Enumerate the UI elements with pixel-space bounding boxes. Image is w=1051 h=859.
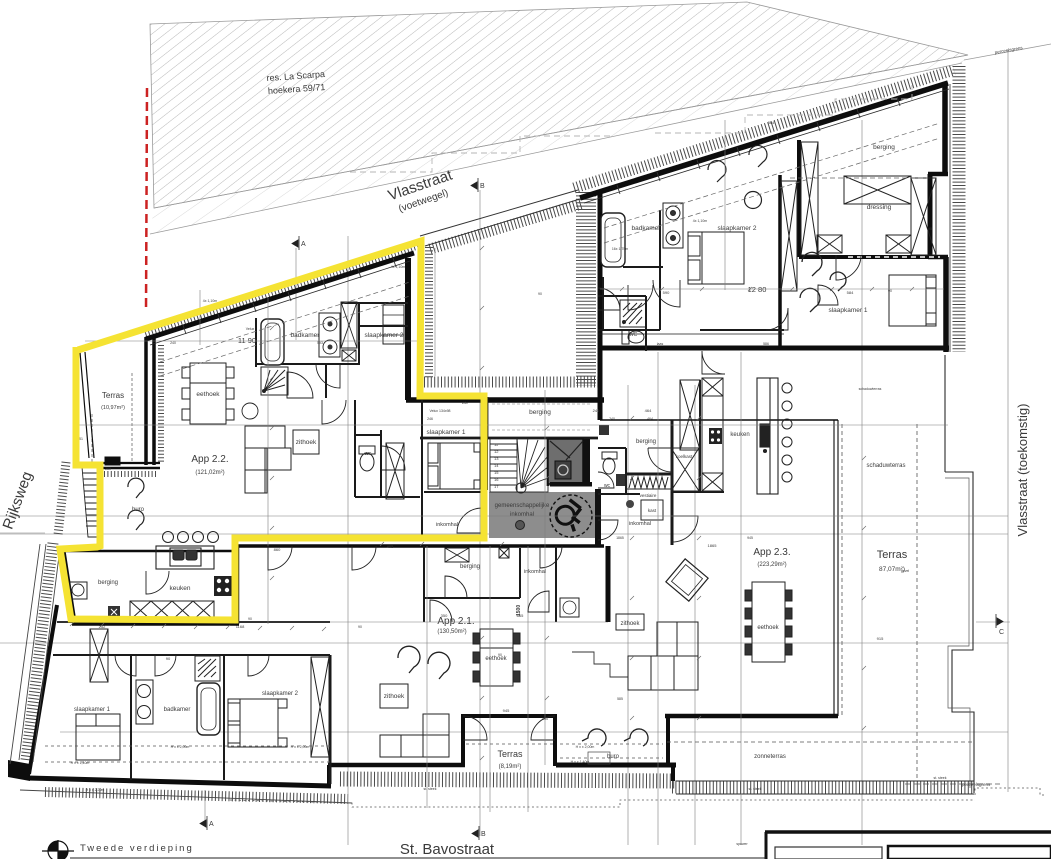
svg-text:1865: 1865 <box>616 536 624 540</box>
svg-text:945: 945 <box>542 717 548 721</box>
svg-text:berging: berging <box>98 580 118 586</box>
svg-text:badkamer: badkamer <box>164 707 191 713</box>
svg-text:H x x 1,40m: H x x 1,40m <box>571 760 590 764</box>
svg-text:860: 860 <box>274 547 281 552</box>
svg-text:vide: vide <box>462 401 468 405</box>
svg-text:4x 1,10m: 4x 1,10m <box>203 299 217 303</box>
svg-text:A: A <box>209 821 214 828</box>
svg-text:915: 915 <box>877 636 884 641</box>
svg-text:zithoek: zithoek <box>296 439 317 446</box>
svg-text:H x x 2,00m: H x x 2,00m <box>291 745 310 749</box>
svg-text:Velux 134x98: Velux 134x98 <box>429 409 450 413</box>
svg-text:C: C <box>999 629 1004 636</box>
svg-text:H x x 1,40m: H x x 1,40m <box>71 761 90 765</box>
svg-text:B: B <box>481 831 486 838</box>
svg-text:90: 90 <box>358 625 362 629</box>
svg-text:12: 12 <box>494 449 499 454</box>
svg-text:inkomhal: inkomhal <box>629 521 651 527</box>
svg-text:berging: berging <box>636 439 656 445</box>
svg-text:App 2.2.: App 2.2. <box>191 454 228 465</box>
svg-text:kast: kast <box>648 508 657 513</box>
svg-text:WC: WC <box>629 332 638 338</box>
svg-text:badkamer: badkamer <box>632 225 662 232</box>
svg-text:berging: berging <box>529 409 551 416</box>
svg-text:Tweede verdieping: Tweede verdieping <box>80 843 194 854</box>
svg-text:585: 585 <box>617 697 623 701</box>
svg-text:864: 864 <box>768 120 775 125</box>
svg-text:246: 246 <box>427 417 433 421</box>
svg-text:slaapkamer 2: slaapkamer 2 <box>717 225 756 232</box>
svg-text:H x x 2,00m: H x x 2,00m <box>171 745 190 749</box>
svg-text:464: 464 <box>647 417 653 421</box>
svg-text:(10,97m²): (10,97m²) <box>101 405 125 411</box>
svg-text:584: 584 <box>847 290 854 295</box>
svg-text:464: 464 <box>645 408 652 413</box>
svg-text:16: 16 <box>494 477 499 482</box>
svg-text:badkamer: badkamer <box>291 332 321 339</box>
svg-text:13: 13 <box>494 456 499 461</box>
svg-text:B: B <box>480 183 485 190</box>
svg-text:gevel: gevel <box>901 569 910 573</box>
svg-text:17: 17 <box>494 484 499 489</box>
svg-text:593: 593 <box>317 341 323 345</box>
svg-text:590: 590 <box>663 290 670 295</box>
svg-text:schaduwterras: schaduwterras <box>866 463 905 469</box>
svg-text:zithoek: zithoek <box>620 621 640 627</box>
svg-text:(130,50m²): (130,50m²) <box>437 629 466 635</box>
svg-text:945: 945 <box>747 536 753 540</box>
svg-text:vestiaire: vestiaire <box>640 493 657 498</box>
svg-text:Terras: Terras <box>877 549 908 561</box>
svg-text:4x 1,10m: 4x 1,10m <box>391 265 405 269</box>
svg-text:St. Bavostraat: St. Bavostraat <box>400 841 495 858</box>
svg-text:1865: 1865 <box>708 543 718 548</box>
svg-text:koelkast: koelkast <box>676 454 693 459</box>
svg-text:slaapkamer 1: slaapkamer 1 <box>74 707 111 713</box>
svg-text:inkomhal: inkomhal <box>524 569 546 575</box>
svg-text:11 90: 11 90 <box>238 336 256 345</box>
svg-text:laas: laas <box>657 342 664 346</box>
svg-text:240: 240 <box>609 417 615 421</box>
svg-text:dressing: dressing <box>867 204 892 211</box>
svg-text:keuken: keuken <box>170 585 191 592</box>
svg-text:A: A <box>301 241 306 248</box>
svg-text:1168: 1168 <box>236 624 245 629</box>
svg-text:slaapkamer 1: slaapkamer 1 <box>426 429 465 436</box>
svg-text:slaapkamer 1: slaapkamer 1 <box>828 307 867 314</box>
svg-text:90: 90 <box>166 656 171 661</box>
svg-text:350: 350 <box>441 613 448 618</box>
svg-text:st. steek: st. steek <box>748 787 761 791</box>
svg-text:90: 90 <box>498 653 502 657</box>
svg-text:246: 246 <box>593 408 600 413</box>
svg-text:eethoek: eethoek <box>757 625 779 631</box>
svg-text:Vlasstraat (toekomstig): Vlasstraat (toekomstig) <box>1015 404 1030 537</box>
svg-text:90: 90 <box>888 289 892 293</box>
svg-text:Terras: Terras <box>102 391 124 400</box>
svg-text:eethoek: eethoek <box>485 656 507 662</box>
svg-text:260: 260 <box>105 467 111 471</box>
svg-text:buro: buro <box>607 754 620 760</box>
svg-text:inkomhal: inkomhal <box>436 522 458 528</box>
svg-text:14: 14 <box>494 463 499 468</box>
svg-text:st. steek: st. steek <box>423 787 436 791</box>
svg-text:inkomhal: inkomhal <box>510 512 534 518</box>
svg-text:1500: 1500 <box>516 605 522 616</box>
svg-text:App 2.3.: App 2.3. <box>753 547 790 558</box>
svg-text:(223,29m²): (223,29m²) <box>757 562 786 568</box>
svg-text:keuken: keuken <box>730 432 749 438</box>
svg-text:gemeenschappelijke: gemeenschappelijke <box>495 503 550 509</box>
svg-text:st. steek: st. steek <box>933 776 946 780</box>
svg-text:16x 1,75m: 16x 1,75m <box>612 247 628 251</box>
svg-text:90: 90 <box>538 292 542 296</box>
svg-text:(8,19m²): (8,19m²) <box>499 764 522 770</box>
svg-text:586: 586 <box>763 342 769 346</box>
svg-text:90: 90 <box>248 617 252 621</box>
svg-text:945: 945 <box>503 708 510 713</box>
svg-text:zithoek: zithoek <box>384 693 405 700</box>
svg-text:eethoek: eethoek <box>196 391 220 398</box>
svg-text:H x x 2,00m: H x x 2,00m <box>576 745 595 749</box>
svg-text:405: 405 <box>387 544 394 549</box>
svg-text:zonneterras: zonneterras <box>754 754 786 760</box>
svg-text:Terras: Terras <box>497 749 523 759</box>
svg-text:schaduwterras: schaduwterras <box>859 387 882 391</box>
svg-text:berging: berging <box>460 564 480 570</box>
svg-text:spuwer: spuwer <box>736 842 748 846</box>
svg-text:90: 90 <box>928 227 932 231</box>
svg-text:berging: berging <box>873 144 895 151</box>
svg-text:Velux: Velux <box>246 327 255 331</box>
svg-text:buro: buro <box>132 507 145 513</box>
svg-text:perceelsgrens: perceelsgrens <box>962 782 991 787</box>
svg-text:15: 15 <box>494 470 499 475</box>
svg-text:12 80: 12 80 <box>748 285 767 294</box>
svg-text:(121,02m²): (121,02m²) <box>195 470 224 476</box>
svg-text:240: 240 <box>170 341 176 345</box>
svg-text:wc: wc <box>364 451 372 457</box>
svg-text:H x x 2,20m: H x x 2,20m <box>86 788 105 792</box>
svg-text:4x 1,10m: 4x 1,10m <box>693 219 707 223</box>
svg-text:slaapkamer 2: slaapkamer 2 <box>262 691 299 697</box>
svg-text:slaapkamer 2: slaapkamer 2 <box>364 332 403 339</box>
